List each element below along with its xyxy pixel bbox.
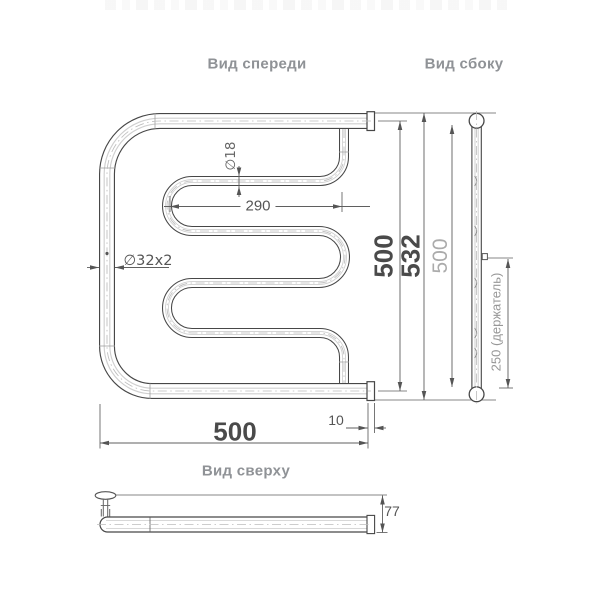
dimension-arrows [90, 113, 510, 533]
dimension-lines [87, 113, 513, 533]
dim-pipe-diameter-18: ∅18 [223, 142, 239, 171]
dim-end-offset-10: 10 [328, 412, 344, 428]
top-view-drawing [95, 492, 387, 534]
dim-overall-height-532: 532 [396, 234, 427, 277]
front-view-label: Вид спереди [207, 56, 306, 73]
side-view-drawing [469, 111, 487, 404]
dim-side-height-500: 500 [429, 238, 453, 273]
dim-width-500: 500 [213, 417, 256, 448]
wall-holder-marker [482, 254, 487, 260]
dim-depth-77: 77 [384, 503, 400, 519]
dim-main-pipe-32x2: ∅32x2 [124, 253, 173, 269]
top-view-label: Вид сверху [202, 463, 290, 480]
dim-holder-spacing-250: 250 (держатель) [489, 273, 504, 372]
side-view-label: Вид сбоку [425, 56, 504, 73]
dim-inner-width-290: 290 [240, 198, 275, 215]
technical-drawing [0, 0, 600, 600]
leader-dot [105, 252, 108, 255]
wall-bracket-top-view [95, 492, 116, 517]
drawing-canvas: Вид спереди Вид сбоку Вид сверху ∅18 290… [0, 0, 600, 600]
